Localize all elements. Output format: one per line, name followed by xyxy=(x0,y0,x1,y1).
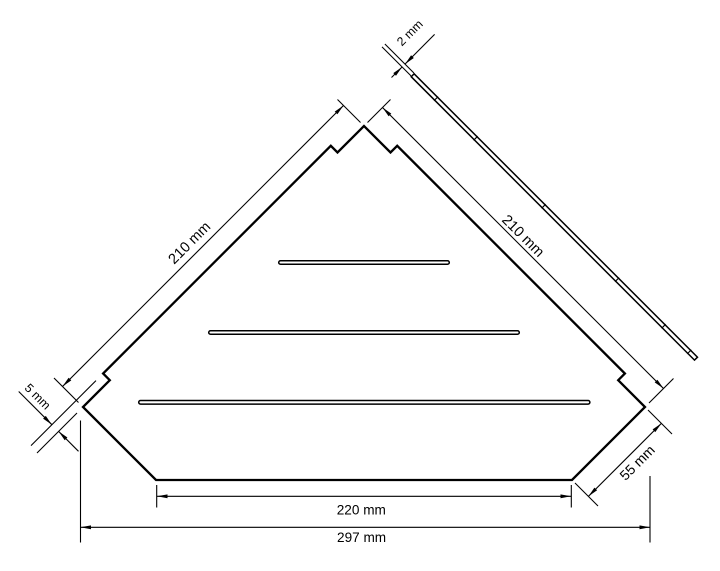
svg-text:297 mm: 297 mm xyxy=(337,530,386,545)
svg-text:220 mm: 220 mm xyxy=(337,502,386,517)
